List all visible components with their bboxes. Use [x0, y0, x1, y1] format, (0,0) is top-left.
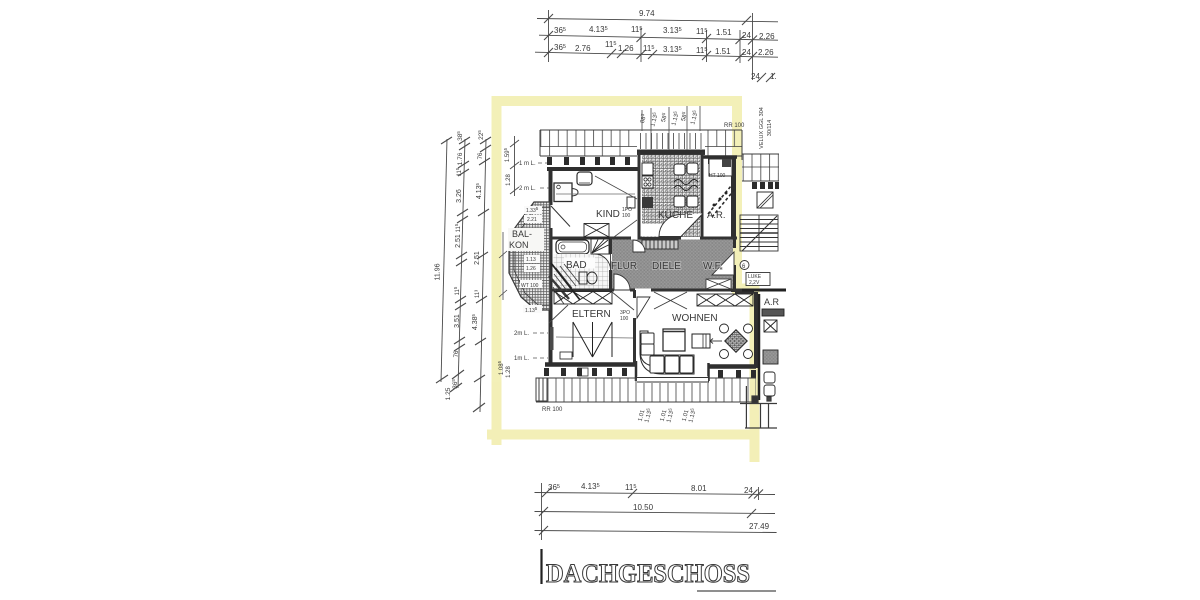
svg-text:24: 24	[742, 48, 751, 57]
svg-text:FLUR: FLUR	[611, 261, 637, 272]
svg-text:1.25: 1.25	[445, 387, 452, 400]
svg-text:100: 100	[620, 316, 629, 322]
svg-text:2.26: 2.26	[759, 32, 775, 41]
svg-text:76: 76	[454, 350, 460, 357]
svg-text:1.28: 1.28	[506, 174, 512, 186]
svg-text:RR 100: RR 100	[724, 123, 745, 129]
svg-text:2 m L.: 2 m L.	[519, 186, 536, 192]
svg-text:2.26: 2.26	[758, 48, 774, 57]
svg-text:2.51: 2.51	[455, 234, 462, 248]
svg-text:KÜCHE: KÜCHE	[658, 209, 693, 221]
svg-text:2.51: 2.51	[474, 251, 481, 265]
svg-text:A.R: A.R	[764, 297, 780, 307]
svg-text:11³: 11³	[475, 290, 481, 298]
svg-text:24: 24	[744, 486, 753, 495]
svg-text:DACHGESCHOSS: DACHGESCHOSS	[546, 559, 750, 588]
svg-text:WT 100: WT 100	[521, 283, 539, 289]
svg-text:ELTERN: ELTERN	[572, 309, 611, 320]
svg-text:VELUX GGL 304: VELUX GGL 304	[759, 107, 765, 149]
svg-text:1m L.: 1m L.	[514, 356, 529, 362]
svg-text:W.F.: W.F.	[703, 261, 722, 272]
svg-text:100: 100	[622, 213, 631, 219]
svg-text:9.74: 9.74	[639, 9, 655, 18]
svg-text:8.01: 8.01	[691, 484, 707, 493]
svg-text:KIND: KIND	[596, 209, 620, 220]
svg-text:1.51: 1.51	[715, 47, 731, 56]
svg-text:2.76: 2.76	[575, 44, 591, 53]
svg-text:30/114: 30/114	[767, 120, 773, 136]
svg-text:1.51: 1.51	[716, 28, 732, 37]
svg-text:3.51: 3.51	[454, 314, 461, 328]
svg-text:2.21: 2.21	[527, 217, 537, 223]
svg-text:HT 100: HT 100	[709, 173, 726, 179]
svg-text:1.76: 1.76	[457, 152, 464, 165]
svg-text:A.R.: A.R.	[707, 210, 725, 221]
svg-text:10.50: 10.50	[633, 503, 654, 512]
svg-text:1.28: 1.28	[506, 366, 512, 378]
svg-text:1.26: 1.26	[618, 44, 634, 53]
svg-text:27.49: 27.49	[749, 522, 770, 531]
svg-text:1.13: 1.13	[526, 257, 536, 263]
svg-text:76: 76	[478, 152, 484, 159]
svg-text:2m L.: 2m L.	[514, 331, 529, 337]
svg-text:KON: KON	[509, 240, 529, 250]
svg-text:BAD: BAD	[566, 260, 587, 271]
svg-text:1.: 1.	[770, 72, 777, 81]
svg-text:RR 100: RR 100	[542, 407, 563, 413]
svg-text:DIELE: DIELE	[652, 261, 681, 272]
svg-text:2,2V: 2,2V	[749, 280, 760, 286]
svg-text:BAL-: BAL-	[512, 229, 532, 239]
svg-text:24: 24	[742, 31, 751, 40]
svg-text:24: 24	[751, 72, 760, 81]
svg-text:1 m L.: 1 m L.	[519, 161, 536, 167]
svg-text:3.26: 3.26	[456, 189, 463, 203]
svg-text:1.26: 1.26	[526, 266, 536, 272]
svg-text:11.96: 11.96	[435, 263, 442, 280]
svg-text:WOHNEN: WOHNEN	[672, 313, 718, 324]
